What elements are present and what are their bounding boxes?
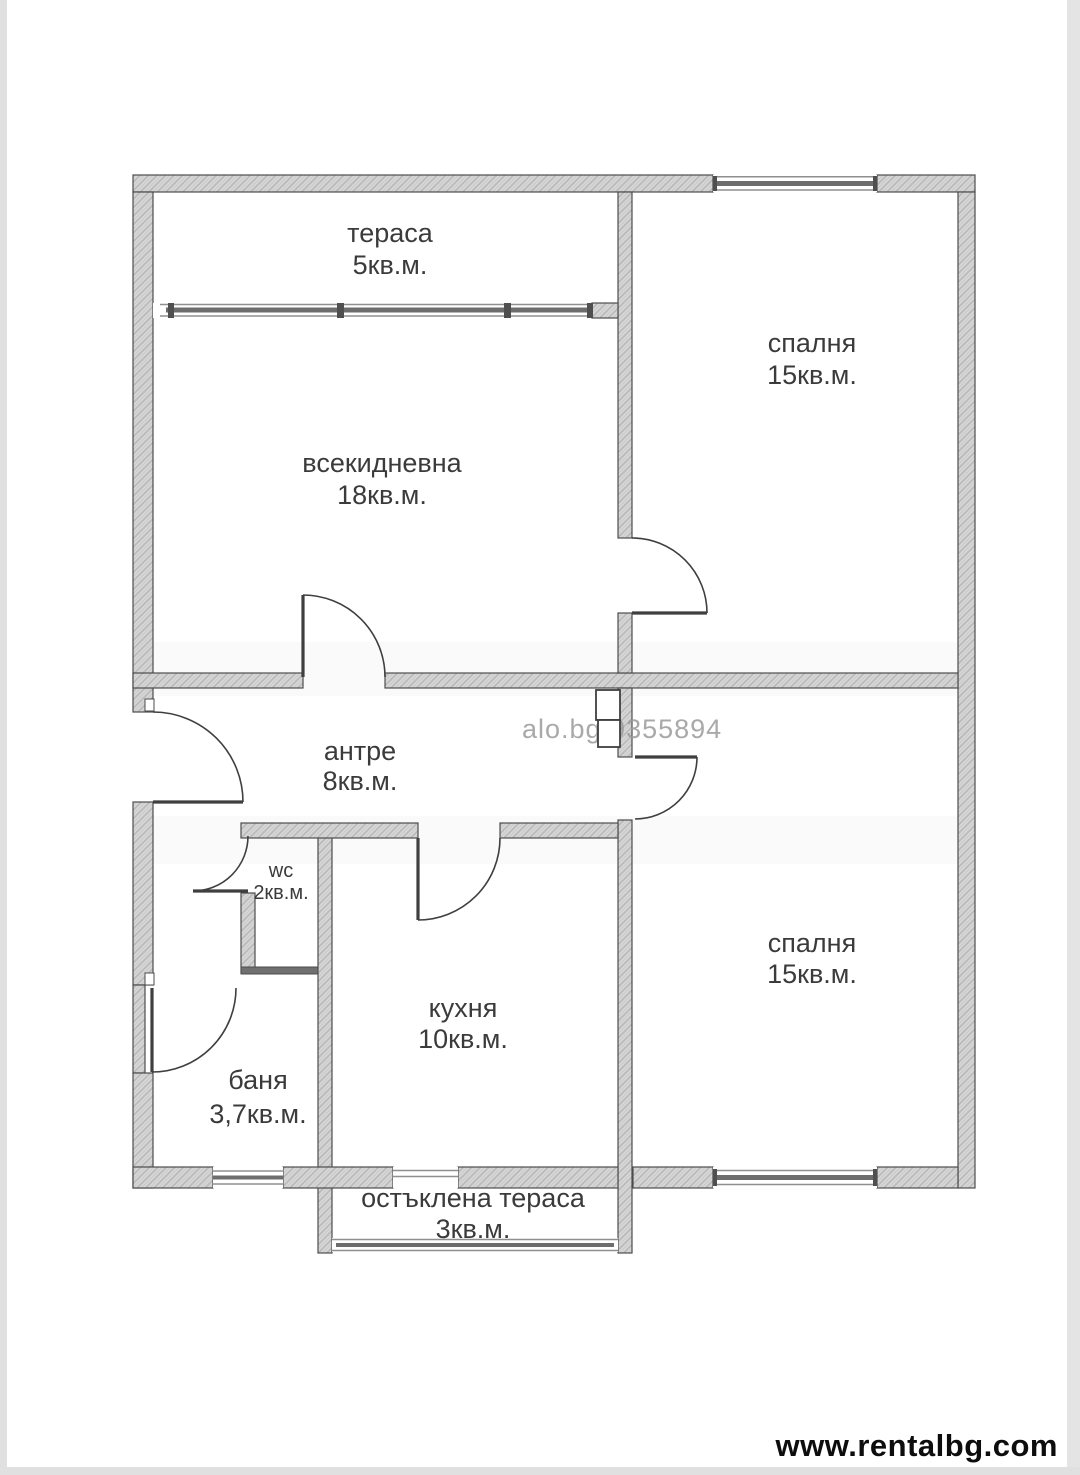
page-edge-left: [0, 0, 7, 1475]
room-label-bedroom-bottom: спалня 15кв.м.: [767, 928, 857, 989]
window-bedroom-top: [713, 175, 877, 192]
wall-segment: [385, 673, 958, 688]
room-label-wc: wc 2кв.м.: [253, 860, 308, 904]
svg-text:10кв.м.: 10кв.м.: [418, 1024, 508, 1054]
footer-url: www.rentalbg.com: [776, 1428, 1058, 1464]
svg-text:8кв.м.: 8кв.м.: [323, 766, 398, 796]
room-label-bathroom: баня 3,7кв.м.: [209, 1065, 306, 1129]
window-terrace-living: [153, 303, 593, 318]
window-bedroom-bottom: [713, 1167, 877, 1188]
wall-segment: [618, 613, 632, 673]
wall-segment: [633, 1167, 713, 1188]
wall-segment: [133, 985, 145, 1073]
svg-text:5кв.м.: 5кв.м.: [353, 250, 428, 280]
svg-text:всекидневна: всекидневна: [302, 448, 462, 478]
wall-segment: [877, 175, 975, 192]
wall-segment: [133, 1167, 213, 1188]
wall-segment: [133, 175, 713, 192]
door-entry: [145, 699, 243, 802]
room-label-glazed-terrace: остъклена тераса 3кв.м.: [361, 1183, 586, 1244]
room-label-living-room: всекидневна 18кв.м.: [302, 448, 462, 510]
room-label-terrace: тераса 5кв.м.: [347, 218, 434, 280]
svg-text:2кв.м.: 2кв.м.: [253, 882, 308, 904]
wall-segment: [318, 835, 332, 1253]
wall-segment: [618, 192, 632, 538]
svg-text:тераса: тераса: [347, 218, 434, 248]
svg-text:18кв.м.: 18кв.м.: [337, 480, 427, 510]
svg-text:15кв.м.: 15кв.м.: [767, 360, 857, 390]
wall-segment: [133, 673, 303, 688]
wall-segment: [500, 823, 618, 838]
door-bedroom-top: [632, 538, 707, 613]
wall-segment: [592, 303, 618, 318]
room-label-kitchen: кухня 10кв.м.: [418, 993, 508, 1054]
svg-text:спалня: спалня: [768, 328, 856, 358]
page-edge-bottom: [0, 1467, 1080, 1475]
wall-segment: [133, 192, 153, 712]
svg-text:15кв.м.: 15кв.м.: [767, 959, 857, 989]
svg-text:wc: wc: [268, 860, 293, 882]
wall-segment: [241, 893, 255, 973]
floor-plan-page: alo.bg 9355894: [0, 0, 1080, 1475]
wall-segment: [877, 1167, 958, 1188]
floor-plan: alo.bg 9355894: [0, 0, 1080, 1475]
door-bedroom-bottom: [635, 757, 697, 819]
svg-text:3кв.м.: 3кв.м.: [436, 1214, 511, 1244]
room-label-entry-hall: антре 8кв.м.: [323, 736, 398, 796]
wall-segment: [241, 823, 418, 838]
window-bathroom: [213, 1167, 283, 1188]
wall-segment: [958, 192, 975, 1188]
wall-segment: [618, 820, 632, 1253]
svg-text:кухня: кухня: [429, 993, 498, 1023]
svg-text:антре: антре: [324, 736, 396, 766]
wall-segment: [133, 802, 153, 985]
svg-text:3,7кв.м.: 3,7кв.м.: [209, 1099, 306, 1129]
svg-text:баня: баня: [228, 1065, 287, 1095]
wall-segment: [241, 967, 318, 974]
svg-text:спалня: спалня: [768, 928, 856, 958]
room-label-bedroom-top: спалня 15кв.м.: [767, 328, 857, 390]
watermark-text: alo.bg 9355894: [522, 714, 722, 744]
vent-shaft: [596, 690, 620, 747]
svg-text:остъклена тераса: остъклена тераса: [361, 1183, 586, 1213]
door-bathroom: [145, 973, 236, 1072]
page-edge-right: [1067, 0, 1080, 1475]
